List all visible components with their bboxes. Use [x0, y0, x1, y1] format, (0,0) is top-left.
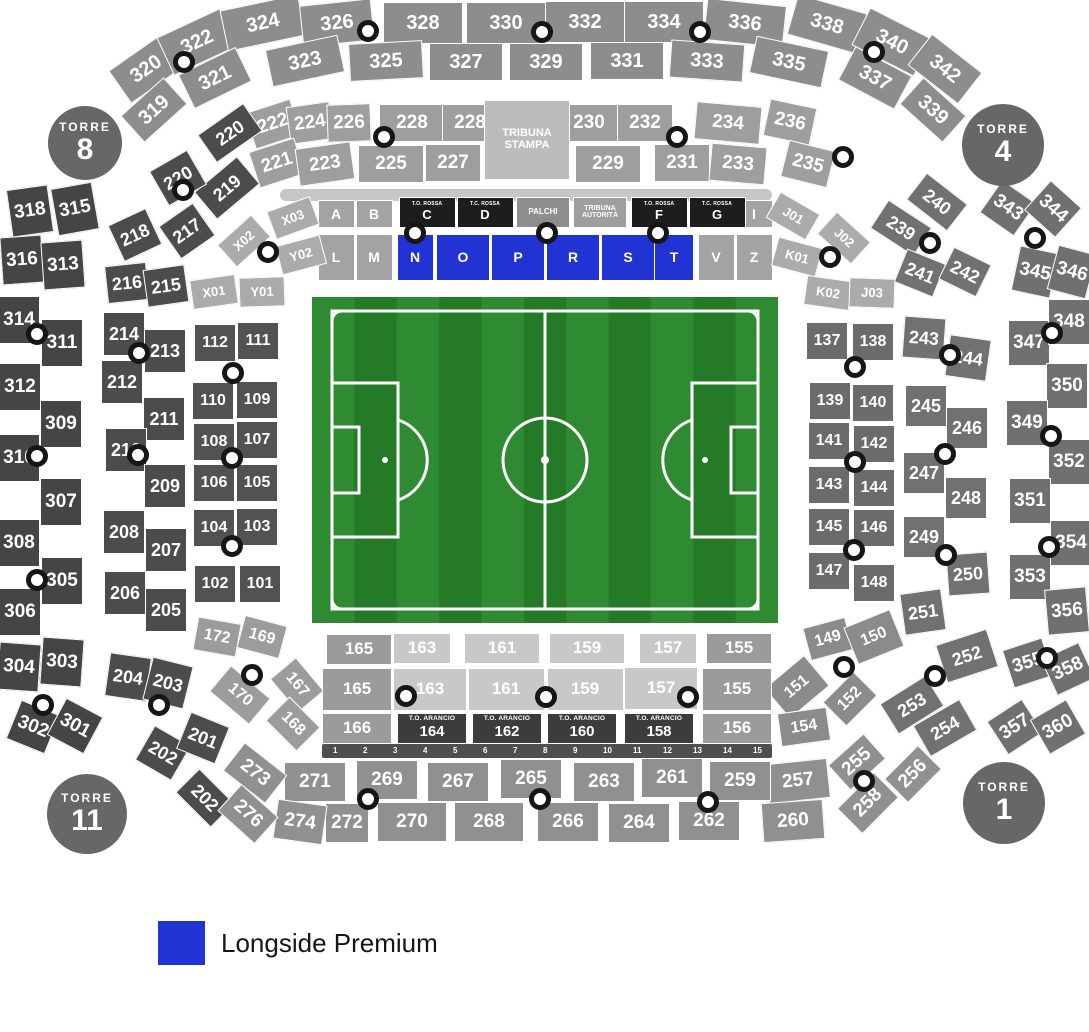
gate-marker-icon [148, 694, 170, 716]
seat-row-number: 9 [573, 747, 577, 755]
gate-marker-icon [833, 656, 855, 678]
section-148[interactable]: 148 [853, 564, 895, 602]
section-257[interactable]: 257 [765, 758, 831, 804]
gate-marker-icon [666, 126, 688, 148]
section-161[interactable]: 161 [468, 668, 545, 711]
section-sub-label: T.O. ARANCIO [409, 716, 455, 723]
section-sub-label: T.O. ARANCIO [484, 716, 530, 723]
gate-marker-icon [819, 246, 841, 268]
section-149[interactable]: 149 [802, 617, 853, 661]
section-225[interactable]: 225 [358, 145, 424, 183]
gate-marker-icon [677, 686, 699, 708]
section-306[interactable]: 306 [0, 588, 41, 636]
gate-marker-icon [844, 356, 866, 378]
tower-label: TORRE [977, 123, 1029, 135]
seat-row-number: 3 [393, 747, 397, 755]
section-111[interactable]: 111 [237, 322, 279, 360]
section-217[interactable]: 217 [158, 203, 215, 260]
section-161[interactable]: 161 [464, 633, 540, 664]
section-271[interactable]: 271 [284, 762, 346, 802]
section-154[interactable]: 154 [777, 707, 831, 748]
tower-8: TORRE8 [48, 106, 122, 180]
section-155[interactable]: 155 [706, 633, 772, 664]
section-218[interactable]: 218 [108, 208, 163, 262]
tower-label: TORRE [61, 792, 113, 804]
gate-marker-icon [221, 447, 243, 469]
tower-number: 4 [995, 137, 1012, 167]
gate-marker-icon [843, 539, 865, 561]
gate-marker-icon [934, 443, 956, 465]
section-261[interactable]: 261 [641, 758, 703, 798]
section-165[interactable]: 165 [326, 634, 392, 665]
section-109[interactable]: 109 [236, 381, 278, 419]
gate-marker-icon [536, 222, 558, 244]
section-268[interactable]: 268 [454, 802, 524, 842]
section-147[interactable]: 147 [808, 552, 850, 590]
section-219[interactable]: 219 [194, 156, 260, 220]
section-205[interactable]: 205 [145, 588, 187, 632]
gate-marker-icon [647, 222, 669, 244]
seat-row-number: 1 [333, 747, 337, 755]
section-k02[interactable]: K02 [803, 275, 853, 311]
seat-row-number: 13 [693, 747, 702, 755]
section-157[interactable]: 157 [639, 633, 697, 664]
section-270[interactable]: 270 [377, 802, 447, 842]
section-234[interactable]: 234 [693, 101, 762, 145]
gate-marker-icon [1040, 425, 1062, 447]
gate-marker-icon [531, 21, 553, 43]
section-313[interactable]: 313 [40, 240, 85, 291]
seat-row-number: 11 [633, 747, 641, 755]
section-312[interactable]: 312 [0, 363, 41, 411]
section-169[interactable]: 169 [236, 615, 287, 659]
section-308[interactable]: 308 [0, 519, 40, 567]
gate-marker-icon [832, 146, 854, 168]
section-110[interactable]: 110 [192, 382, 234, 420]
section-309[interactable]: 309 [40, 400, 82, 448]
section-207[interactable]: 207 [145, 528, 187, 572]
right-penalty-spot [702, 457, 708, 463]
section-216[interactable]: 216 [104, 262, 150, 304]
tower-number: 8 [77, 135, 94, 165]
tower-number: 1 [996, 795, 1013, 825]
section-j03[interactable]: J03 [848, 277, 895, 309]
gate-marker-icon [395, 685, 417, 707]
section-c[interactable]: T.O. ROSSAC [399, 197, 456, 228]
section-251[interactable]: 251 [899, 588, 946, 635]
section-k01[interactable]: K01 [771, 237, 823, 278]
section-223[interactable]: 223 [295, 141, 356, 186]
legend: Longside Premium [158, 921, 438, 965]
section-335[interactable]: 335 [749, 36, 829, 89]
gate-marker-icon [26, 445, 48, 467]
tower-label: TORRE [978, 781, 1030, 793]
section-329[interactable]: 329 [509, 43, 583, 81]
section-226[interactable]: 226 [326, 103, 371, 143]
section-241[interactable]: 241 [894, 248, 946, 297]
section-number: 162 [494, 724, 519, 740]
section-331[interactable]: 331 [590, 42, 664, 80]
section-m[interactable]: M [356, 234, 393, 281]
section-number: F [655, 208, 663, 222]
gate-marker-icon [935, 544, 957, 566]
section-y01[interactable]: Y01 [238, 276, 285, 308]
gate-marker-icon [924, 665, 946, 687]
section-235[interactable]: 235 [780, 140, 836, 188]
section-232[interactable]: 232 [617, 104, 673, 142]
section-246[interactable]: 246 [946, 407, 988, 449]
gate-marker-icon [529, 788, 551, 810]
section-number: G [712, 208, 722, 222]
section-274[interactable]: 274 [272, 799, 327, 846]
section-112[interactable]: 112 [194, 324, 236, 362]
section-152[interactable]: 152 [822, 671, 877, 726]
section-242[interactable]: 242 [938, 247, 992, 298]
section-316[interactable]: 316 [0, 235, 45, 286]
section-213[interactable]: 213 [144, 329, 186, 373]
section-159[interactable]: 159 [549, 633, 625, 664]
section-227[interactable]: 227 [425, 144, 481, 182]
section-105[interactable]: 105 [236, 464, 278, 502]
section-267[interactable]: 267 [427, 762, 489, 802]
section-158[interactable]: T.O. ARANCIO158 [624, 713, 694, 744]
section-159[interactable]: 159 [547, 668, 624, 711]
section-p[interactable]: P [491, 234, 545, 281]
seat-row-number: 5 [453, 747, 457, 755]
section-211[interactable]: 211 [143, 397, 185, 441]
section-138[interactable]: 138 [852, 323, 894, 361]
gate-marker-icon [697, 791, 719, 813]
gate-marker-icon [1038, 536, 1060, 558]
section-264[interactable]: 264 [608, 803, 670, 843]
section-sub-label: T.O. ARANCIO [559, 716, 605, 723]
section-168[interactable]: 168 [265, 696, 320, 751]
section-137[interactable]: 137 [806, 322, 848, 360]
seat-row-number: 4 [423, 747, 427, 755]
gate-marker-icon [172, 179, 194, 201]
section-172[interactable]: 172 [192, 616, 241, 657]
section-140[interactable]: 140 [852, 384, 894, 422]
section-360[interactable]: 360 [1030, 699, 1086, 755]
section-sub-label: T.O. ARANCIO [636, 716, 682, 723]
section-166[interactable]: 166 [322, 713, 392, 744]
section-156[interactable]: 156 [702, 713, 772, 744]
gate-marker-icon [257, 241, 279, 263]
section-160[interactable]: T.O. ARANCIO160 [547, 713, 617, 744]
section-245[interactable]: 245 [905, 385, 947, 427]
section-z[interactable]: Z [736, 234, 773, 281]
section-a[interactable]: A [318, 200, 355, 228]
gate-marker-icon [1024, 227, 1046, 249]
gate-marker-icon [26, 569, 48, 591]
section-number: 158 [646, 724, 671, 740]
section-145[interactable]: 145 [808, 508, 850, 546]
section-356[interactable]: 356 [1044, 586, 1089, 635]
section-350[interactable]: 350 [1046, 363, 1088, 409]
section-101[interactable]: 101 [239, 565, 281, 603]
section-327[interactable]: 327 [429, 43, 503, 81]
gate-marker-icon [373, 126, 395, 148]
tower-label: TORRE [59, 121, 111, 133]
gate-marker-icon [173, 51, 195, 73]
centre-spot [541, 456, 549, 464]
gate-marker-icon [222, 362, 244, 384]
legend-swatch-longside-premium [158, 921, 205, 965]
gate-marker-icon [404, 222, 426, 244]
left-penalty-spot [382, 457, 388, 463]
section-263[interactable]: 263 [573, 762, 635, 802]
section-x01[interactable]: X01 [189, 274, 239, 310]
section-212[interactable]: 212 [101, 360, 143, 404]
section-233[interactable]: 233 [708, 143, 767, 186]
gate-marker-icon [919, 232, 941, 254]
section-311[interactable]: 311 [41, 319, 83, 367]
section-144[interactable]: 144 [853, 469, 895, 507]
section-155[interactable]: 155 [702, 668, 772, 711]
gate-marker-icon [32, 694, 54, 716]
section-318[interactable]: 318 [6, 184, 54, 237]
section-231[interactable]: 231 [654, 144, 710, 182]
seat-row-number: 14 [723, 747, 732, 755]
seat-row-number: 15 [753, 747, 762, 755]
gate-marker-icon [535, 686, 557, 708]
section-325[interactable]: 325 [348, 40, 424, 82]
section-272[interactable]: 272 [325, 803, 369, 843]
gate-marker-icon [1036, 647, 1058, 669]
tower-11: TORRE11 [47, 774, 127, 854]
section-number: C [422, 208, 431, 222]
section-303[interactable]: 303 [39, 637, 84, 688]
legend-label: Longside Premium [221, 928, 438, 959]
section-248[interactable]: 248 [945, 477, 987, 519]
seat-row-number: 8 [543, 747, 547, 755]
seat-row-number: 6 [483, 747, 487, 755]
section-d[interactable]: T.C. ROSSAD [457, 197, 514, 228]
section-206[interactable]: 206 [104, 571, 146, 615]
section-209[interactable]: 209 [144, 464, 186, 508]
gate-marker-icon [128, 342, 150, 364]
section-315[interactable]: 315 [50, 182, 100, 237]
section-v[interactable]: V [698, 234, 735, 281]
gate-marker-icon [26, 323, 48, 345]
section-b[interactable]: B [356, 200, 393, 228]
gate-marker-icon [357, 20, 379, 42]
tower-number: 11 [71, 806, 103, 836]
gate-marker-icon [221, 535, 243, 557]
section-332[interactable]: 332 [545, 1, 625, 43]
section-208[interactable]: 208 [103, 510, 145, 554]
section-j01[interactable]: J01 [766, 192, 821, 241]
section-328[interactable]: 328 [383, 2, 463, 44]
seat-row-number: 7 [513, 747, 517, 755]
section-106[interactable]: 106 [193, 464, 235, 502]
gate-marker-icon [863, 41, 885, 63]
gate-marker-icon [689, 21, 711, 43]
gate-marker-icon [241, 664, 263, 686]
section-236[interactable]: 236 [763, 98, 818, 145]
gate-marker-icon [853, 770, 875, 792]
section-s[interactable]: S [601, 234, 655, 281]
section-141[interactable]: 141 [808, 422, 850, 460]
section-102[interactable]: 102 [194, 565, 236, 603]
section-g[interactable]: T.C. ROSSAG [689, 197, 746, 228]
section-139[interactable]: 139 [809, 382, 851, 420]
section-323[interactable]: 323 [265, 35, 345, 88]
stadium-seat-map: 3203223243263283303323343363383403423193… [0, 0, 1089, 1032]
gate-marker-icon [844, 451, 866, 473]
gate-marker-icon [939, 344, 961, 366]
section-tribuna-autorit-[interactable]: TRIBUNA AUTORITÀ [573, 197, 627, 228]
section-143[interactable]: 143 [808, 466, 850, 504]
section-304[interactable]: 304 [0, 642, 42, 693]
section-259[interactable]: 259 [709, 761, 771, 801]
football-pitch [312, 297, 778, 623]
section-number: 164 [419, 724, 444, 740]
section-x03[interactable]: X03 [266, 196, 319, 240]
section-333[interactable]: 333 [669, 39, 745, 82]
section-163[interactable]: 163 [393, 633, 451, 664]
section-tribuna-stampa[interactable]: TRIBUNA STAMPA [484, 100, 570, 180]
gate-marker-icon [357, 788, 379, 810]
section-number: 160 [569, 724, 594, 740]
section-o[interactable]: O [436, 234, 490, 281]
section-103[interactable]: 103 [236, 508, 278, 546]
section-165[interactable]: 165 [322, 668, 392, 711]
gate-marker-icon [1041, 322, 1063, 344]
tower-4: TORRE4 [962, 104, 1044, 186]
seat-row-number: 10 [603, 747, 612, 755]
section-301[interactable]: 301 [47, 698, 104, 755]
gate-marker-icon [127, 444, 149, 466]
section-150[interactable]: 150 [843, 609, 904, 665]
seat-row-number: 2 [363, 747, 367, 755]
section-229[interactable]: 229 [575, 145, 641, 183]
section-162[interactable]: T.O. ARANCIO162 [472, 713, 542, 744]
section-215[interactable]: 215 [143, 264, 190, 307]
tower-1: TORRE1 [963, 762, 1045, 844]
section-307[interactable]: 307 [40, 478, 82, 526]
seat-row-number: 12 [663, 747, 672, 755]
section-number: D [480, 208, 489, 222]
section-260[interactable]: 260 [761, 799, 826, 843]
section-351[interactable]: 351 [1009, 478, 1051, 524]
section-164[interactable]: T.O. ARANCIO164 [397, 713, 467, 744]
